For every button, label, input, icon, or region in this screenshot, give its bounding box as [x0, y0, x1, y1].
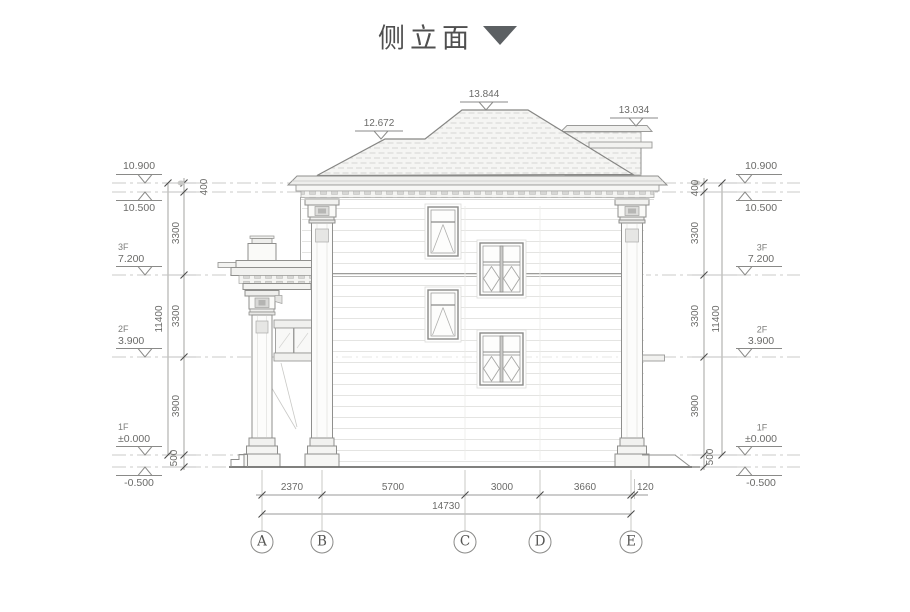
level-3900-right: 3.900	[748, 336, 774, 347]
vdim-11400-right: 11400	[712, 305, 722, 332]
hdim-3000: 3000	[491, 483, 513, 493]
right-ledge	[643, 355, 665, 361]
level-10900-right: 10.900	[745, 161, 777, 172]
porch-structure	[218, 236, 322, 467]
main-wall	[300, 197, 646, 467]
window-3f-large	[477, 240, 526, 298]
grid-bubble-a: A	[257, 535, 267, 549]
floor-2f-left: 2F	[118, 325, 129, 334]
vdim-400-left: 400	[200, 179, 210, 196]
grid-bubble-d: D	[535, 535, 546, 549]
grid-bubble-e: E	[626, 535, 636, 549]
floor-3f-left: 3F	[118, 243, 129, 252]
roof-mark-main: 13.844	[469, 90, 500, 100]
level-3900-left: 3.900	[118, 336, 144, 347]
window-2f-narrow	[425, 287, 461, 342]
elevation-sheet: 侧立面 13.844 12.672 13.034 10.900 10.500 3…	[0, 0, 910, 612]
hdim-120: 120	[637, 483, 654, 493]
level-10500-left: 10.500	[123, 203, 155, 214]
floor-2f-right: 2F	[757, 326, 768, 335]
level-m500-right: -0.500	[746, 478, 776, 489]
page-title: 侧立面	[378, 17, 474, 56]
level-10500-right: 10.500	[745, 203, 777, 214]
grid-bubble-b: B	[317, 535, 327, 549]
hdim-5700: 5700	[382, 483, 404, 493]
level-7200-right: 7.200	[748, 254, 774, 265]
floor-1f-left: 1F	[118, 423, 129, 432]
hdim-14730: 14730	[432, 502, 460, 512]
hdim-2370: 2370	[281, 483, 303, 493]
level-0000-right: ±0.000	[745, 434, 777, 445]
vdim-11400-left: 11400	[155, 305, 165, 332]
window-2f-large	[477, 330, 526, 388]
floor-3f-right: 3F	[757, 244, 768, 253]
hdim-3660: 3660	[574, 483, 596, 493]
level-0000-left: ±0.000	[118, 434, 150, 445]
level-10900-left: 10.900	[123, 161, 155, 172]
vdim-3300b-right: 3300	[691, 305, 701, 327]
vdim-400-right: 400	[691, 180, 701, 197]
vdim-3900-left: 3900	[172, 395, 182, 417]
roof-mark-left: 12.672	[364, 119, 395, 129]
vdim-3300b-left: 3300	[172, 305, 182, 327]
window-3f-narrow	[425, 204, 461, 259]
elevation-canvas	[0, 0, 910, 612]
vdim-500-left: 500	[170, 450, 180, 467]
roof-mark-right: 13.034	[619, 106, 650, 116]
vdim-3300a-left: 3300	[172, 222, 182, 244]
vdim-3300a-right: 3300	[691, 222, 701, 244]
level-m500-left: -0.500	[124, 478, 154, 489]
eaves-cornice	[288, 176, 667, 200]
level-7200-left: 7.200	[118, 254, 144, 265]
grid-bubble-c: C	[460, 535, 470, 549]
floor-1f-right: 1F	[757, 424, 768, 433]
grid-bubbles	[251, 531, 642, 553]
vdim-500-right: 500	[706, 449, 716, 466]
title-triangle-icon	[483, 26, 517, 45]
vdim-3900-right: 3900	[691, 395, 701, 417]
